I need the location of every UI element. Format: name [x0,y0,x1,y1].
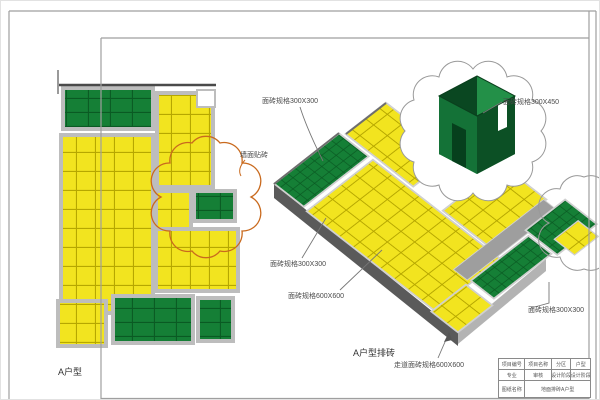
title-block-cell: 设计阶段 [571,370,590,381]
title-block-sheet-name-label: 图纸名称 [499,381,525,398]
title-block-cell: 项目编号 [499,359,525,370]
label-spec-right: 面砖规格300X300 [528,305,584,315]
label-spec-600: 面砖规格600X600 [288,291,344,301]
title-block-cell: 专业 [499,370,525,381]
title-block-row: 项目编号 项目名称 分区 户型 [499,359,590,370]
title-block-cell: 分区 [552,359,572,370]
title-block-row: 专业 审核 设计阶段 设计阶段 [499,370,590,381]
drawing-sheet: 面砖规格300X300 面砖规格300X450 墙面贴砖 面砖规格300X300… [0,0,600,400]
title-block-sheet-name-value: 地面排砖A户型 [525,381,590,398]
title-block-cell: 户型 [571,359,590,370]
title-block-cell: 设计阶段 [552,370,572,381]
floor-plan-2d [57,70,238,346]
title-block: 项目编号 项目名称 分区 户型 专业 审核 设计阶段 设计阶段 图纸名称 地面排… [498,358,591,398]
title-block-row: 图纸名称 地面排砖A户型 [499,381,590,398]
iso-view-title: A户型排砖 [353,346,395,359]
title-block-cell: 项目名称 [525,359,551,370]
plan-view-title: A户型 [58,365,82,378]
title-block-cell: 审核 [525,370,551,381]
drawing-canvas [1,1,600,400]
label-spec-left: 面砖规格300X300 [270,259,326,269]
tiled-box-3d [439,76,515,174]
label-wall-tile: 墙面贴砖 [240,150,268,160]
label-corridor: 走道面砖规格600X600 [394,360,464,370]
label-spec-top: 面砖规格300X300 [262,96,318,106]
label-spec-box: 面砖规格300X450 [503,97,559,107]
